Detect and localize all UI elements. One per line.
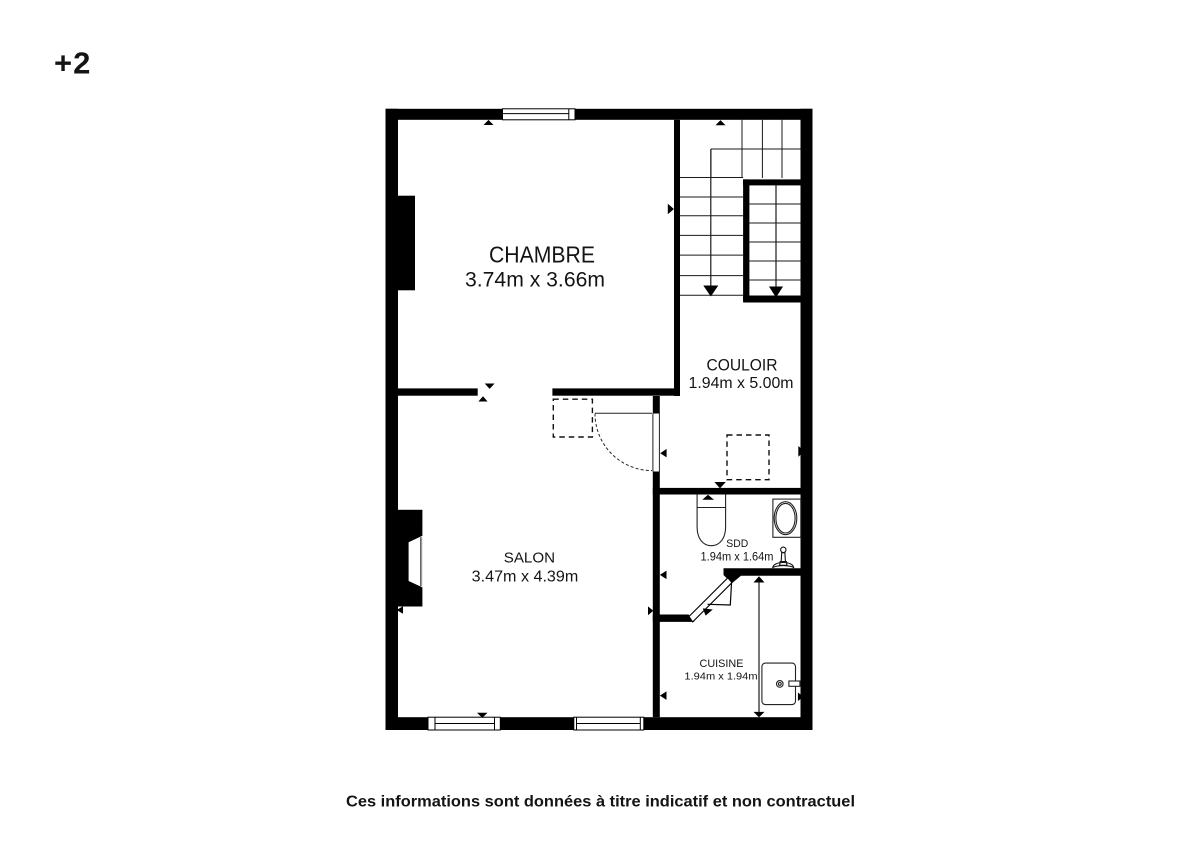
svg-text:+2: +2 [54, 46, 91, 81]
svg-text:Ces informations sont données: Ces informations sont données à titre in… [346, 794, 855, 811]
svg-text:1.94m x 1.94m: 1.94m x 1.94m [684, 670, 757, 682]
svg-text:CUISINE: CUISINE [700, 658, 744, 670]
svg-text:3.47m x 4.39m: 3.47m x 4.39m [472, 569, 579, 586]
svg-text:1.94m x 1.64m: 1.94m x 1.64m [701, 552, 774, 564]
svg-text:3.74m x 3.66m: 3.74m x 3.66m [465, 268, 605, 292]
svg-text:CHAMBRE: CHAMBRE [489, 242, 595, 268]
svg-text:SDD: SDD [726, 538, 748, 550]
svg-text:SALON: SALON [504, 551, 555, 567]
svg-text:1.94m x 5.00m: 1.94m x 5.00m [689, 375, 794, 392]
svg-text:COULOIR: COULOIR [707, 357, 778, 375]
